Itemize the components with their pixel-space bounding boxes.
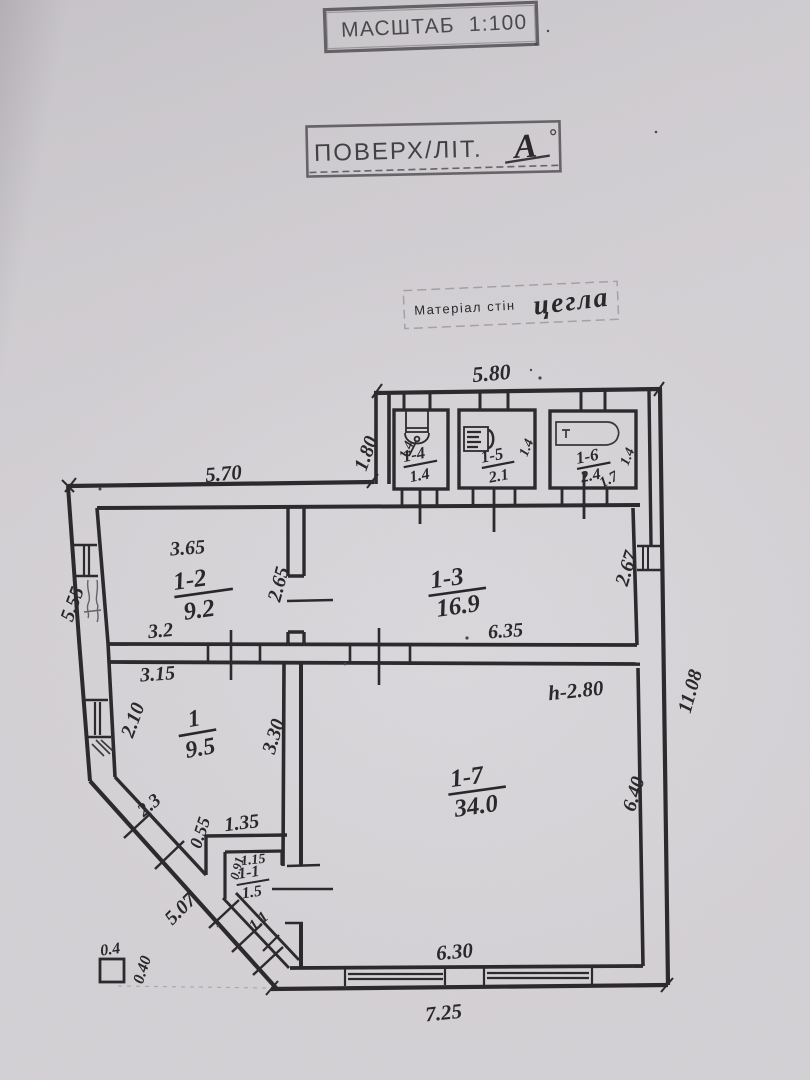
svg-text:3.15: 3.15 xyxy=(138,662,175,686)
svg-text:3.65: 3.65 xyxy=(168,536,205,560)
svg-text:0.4: 0.4 xyxy=(99,940,121,960)
svg-text:1.35: 1.35 xyxy=(223,810,260,836)
svg-text:6.30: 6.30 xyxy=(435,938,474,965)
svg-text:3.2: 3.2 xyxy=(146,619,174,643)
svg-text:1-1: 1-1 xyxy=(237,863,260,883)
svg-text:9.5: 9.5 xyxy=(183,733,217,764)
svg-text:1-7: 1-7 xyxy=(448,761,486,793)
svg-text:ПОВЕРХ/ЛІТ.: ПОВЕРХ/ЛІТ. xyxy=(314,136,483,167)
svg-text:5.80: 5.80 xyxy=(471,359,512,387)
svg-text:1.5: 1.5 xyxy=(241,883,263,903)
svg-text:1-3: 1-3 xyxy=(429,563,466,594)
svg-text:9.2: 9.2 xyxy=(182,595,217,626)
svg-text:7.25: 7.25 xyxy=(424,999,463,1027)
svg-text:1-2: 1-2 xyxy=(172,565,209,596)
svg-text:5.70: 5.70 xyxy=(204,460,243,487)
svg-text:6.35: 6.35 xyxy=(487,619,523,643)
